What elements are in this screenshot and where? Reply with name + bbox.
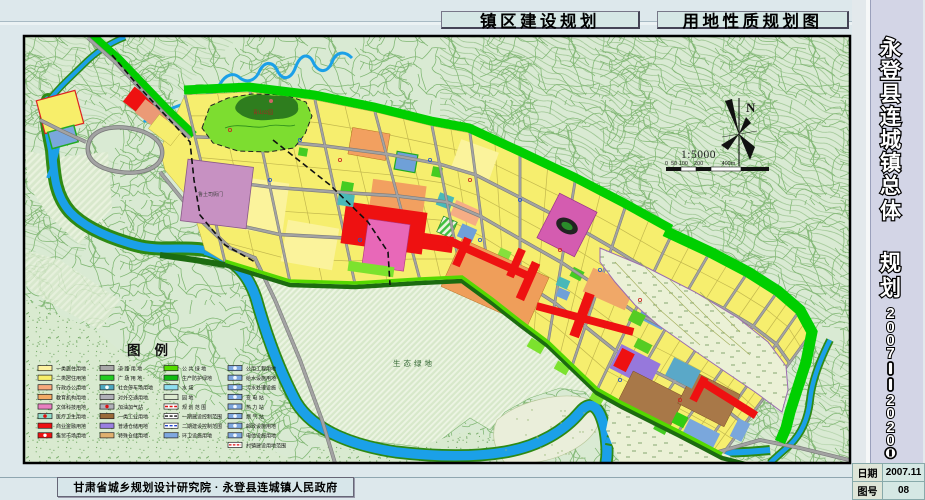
- svg-text:城: 城: [880, 128, 901, 152]
- svg-text:变 电 站: 变 电 站: [246, 394, 264, 401]
- svg-text:广 场 用 地: 广 场 用 地: [118, 375, 142, 382]
- svg-text:村镇建设用地范围: 村镇建设用地范围: [246, 442, 286, 449]
- svg-text:特殊仓储用地: 特殊仓储用地: [118, 433, 148, 440]
- svg-text:0: 0: [886, 432, 894, 449]
- svg-text:社会停车场用地: 社会停车场用地: [118, 385, 153, 392]
- svg-text:水 域: 水 域: [182, 385, 193, 392]
- svg-text:热 力 站: 热 力 站: [246, 404, 264, 411]
- svg-text:体: 体: [880, 200, 902, 223]
- svg-text:总: 总: [880, 174, 901, 198]
- svg-text:对外交通用地: 对外交通用地: [118, 394, 148, 401]
- svg-text:加油加气站: 加油加气站: [118, 404, 143, 411]
- svg-text:永: 永: [879, 37, 901, 60]
- svg-text:一类居住用地: 一类居住用地: [56, 366, 86, 373]
- svg-text:园 地: 园 地: [182, 394, 193, 401]
- svg-text:规: 规: [880, 252, 901, 275]
- svg-text:教育机构用地: 教育机构用地: [56, 394, 86, 401]
- svg-text:青山公园: 青山公园: [253, 109, 273, 116]
- svg-text:图例: 图例: [127, 342, 182, 358]
- svg-text:生产防护绿地: 生产防护绿地: [182, 375, 212, 382]
- svg-text:行政办公用地: 行政办公用地: [56, 385, 86, 392]
- svg-text:N: N: [746, 100, 756, 115]
- svg-text:燃 气 站: 燃 气 站: [246, 414, 264, 421]
- svg-text:规 划 范 围: 规 划 范 围: [182, 404, 206, 411]
- svg-text:连: 连: [880, 105, 902, 129]
- svg-text:污水处理设施: 污水处理设施: [246, 385, 276, 392]
- svg-text:县: 县: [880, 83, 901, 106]
- svg-text:普通仓储用地: 普通仓储用地: [118, 423, 148, 430]
- svg-text:生态绿地: 生态绿地: [393, 358, 435, 368]
- svg-text:一期建设控制范围: 一期建设控制范围: [182, 414, 222, 421]
- svg-text:文体科技用地: 文体科技用地: [56, 404, 86, 411]
- svg-text:公用工程用地: 公用工程用地: [246, 366, 276, 373]
- svg-text:登: 登: [879, 59, 902, 83]
- svg-text:镇: 镇: [880, 152, 901, 175]
- svg-text:二期建设控制范围: 二期建设控制范围: [182, 423, 222, 430]
- svg-text:鲁土司衙门: 鲁土司衙门: [198, 191, 223, 198]
- svg-text:电信设施用地: 电信设施用地: [246, 433, 276, 440]
- svg-text:划: 划: [880, 277, 901, 300]
- svg-text:环卫设施用地: 环卫设施用地: [182, 433, 212, 440]
- svg-text:1:5000: 1:5000: [681, 149, 716, 161]
- svg-text:7: 7: [886, 345, 894, 362]
- svg-text:医疗卫生用地: 医疗卫生用地: [56, 414, 86, 421]
- svg-text:道 路 用 地: 道 路 用 地: [118, 366, 142, 373]
- svg-text:公 共 绿 地: 公 共 绿 地: [182, 366, 206, 373]
- svg-text:0 50 100 200 40: 0 50 100 200 400m: [665, 161, 736, 167]
- svg-text:二类居住用地: 二类居住用地: [56, 375, 86, 382]
- svg-text:一类工业用地: 一类工业用地: [118, 414, 148, 421]
- svg-text:集贸市场用地: 集贸市场用地: [56, 433, 86, 440]
- svg-text:商业金融用地: 商业金融用地: [56, 423, 86, 430]
- svg-text:给水设施用地: 给水设施用地: [246, 375, 276, 382]
- svg-text:邮政设施用地: 邮政设施用地: [246, 423, 276, 430]
